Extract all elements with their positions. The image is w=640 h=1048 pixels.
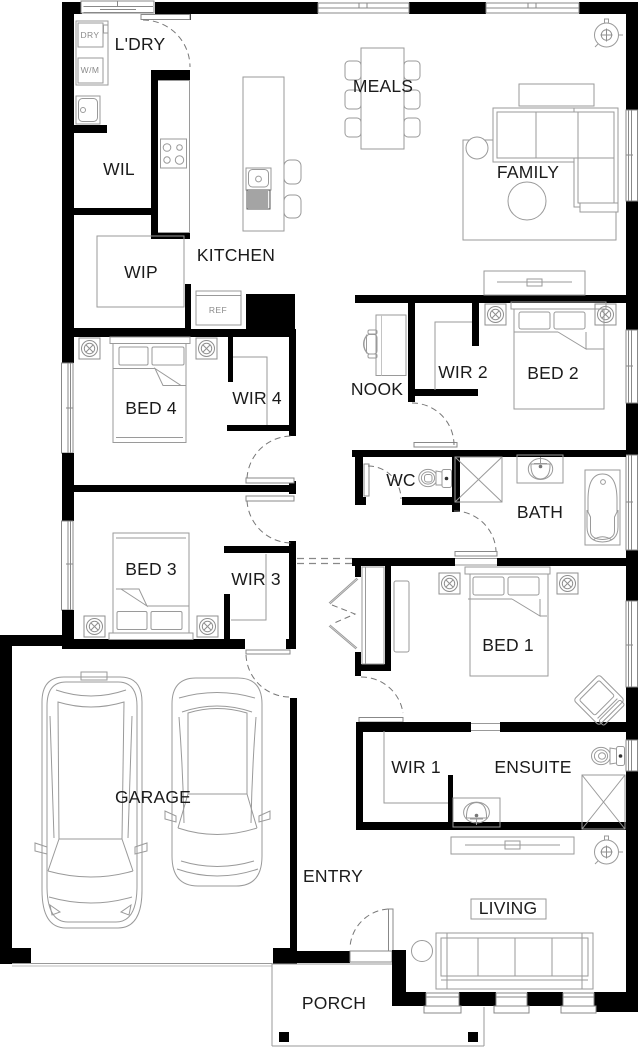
svg-text:WIR 1: WIR 1 <box>391 757 441 777</box>
svg-text:ENTRY: ENTRY <box>303 866 363 886</box>
svg-text:FAMILY: FAMILY <box>497 162 559 182</box>
svg-text:BED 4: BED 4 <box>125 398 177 418</box>
svg-text:WIR 2: WIR 2 <box>438 362 488 382</box>
svg-text:BED 1: BED 1 <box>482 635 534 655</box>
svg-text:WIR 4: WIR 4 <box>232 388 282 408</box>
svg-text:BATH: BATH <box>517 502 563 522</box>
svg-text:L'DRY: L'DRY <box>115 34 166 54</box>
svg-text:WIP: WIP <box>124 262 158 282</box>
svg-text:GARAGE: GARAGE <box>115 787 191 807</box>
svg-text:BED 3: BED 3 <box>125 559 177 579</box>
svg-text:REF: REF <box>209 305 227 315</box>
svg-text:NOOK: NOOK <box>351 379 403 399</box>
svg-text:DRY: DRY <box>81 30 100 40</box>
svg-text:MEALS: MEALS <box>353 76 413 96</box>
svg-text:W/M: W/M <box>81 65 100 75</box>
svg-text:ENSUITE: ENSUITE <box>494 757 571 777</box>
svg-text:LIVING: LIVING <box>479 898 538 918</box>
svg-text:WIR 3: WIR 3 <box>231 569 281 589</box>
svg-text:WIL: WIL <box>103 159 135 179</box>
svg-text:BED 2: BED 2 <box>527 363 579 383</box>
svg-text:PORCH: PORCH <box>302 993 366 1013</box>
svg-text:WC: WC <box>386 470 416 490</box>
svg-text:KITCHEN: KITCHEN <box>197 245 275 265</box>
